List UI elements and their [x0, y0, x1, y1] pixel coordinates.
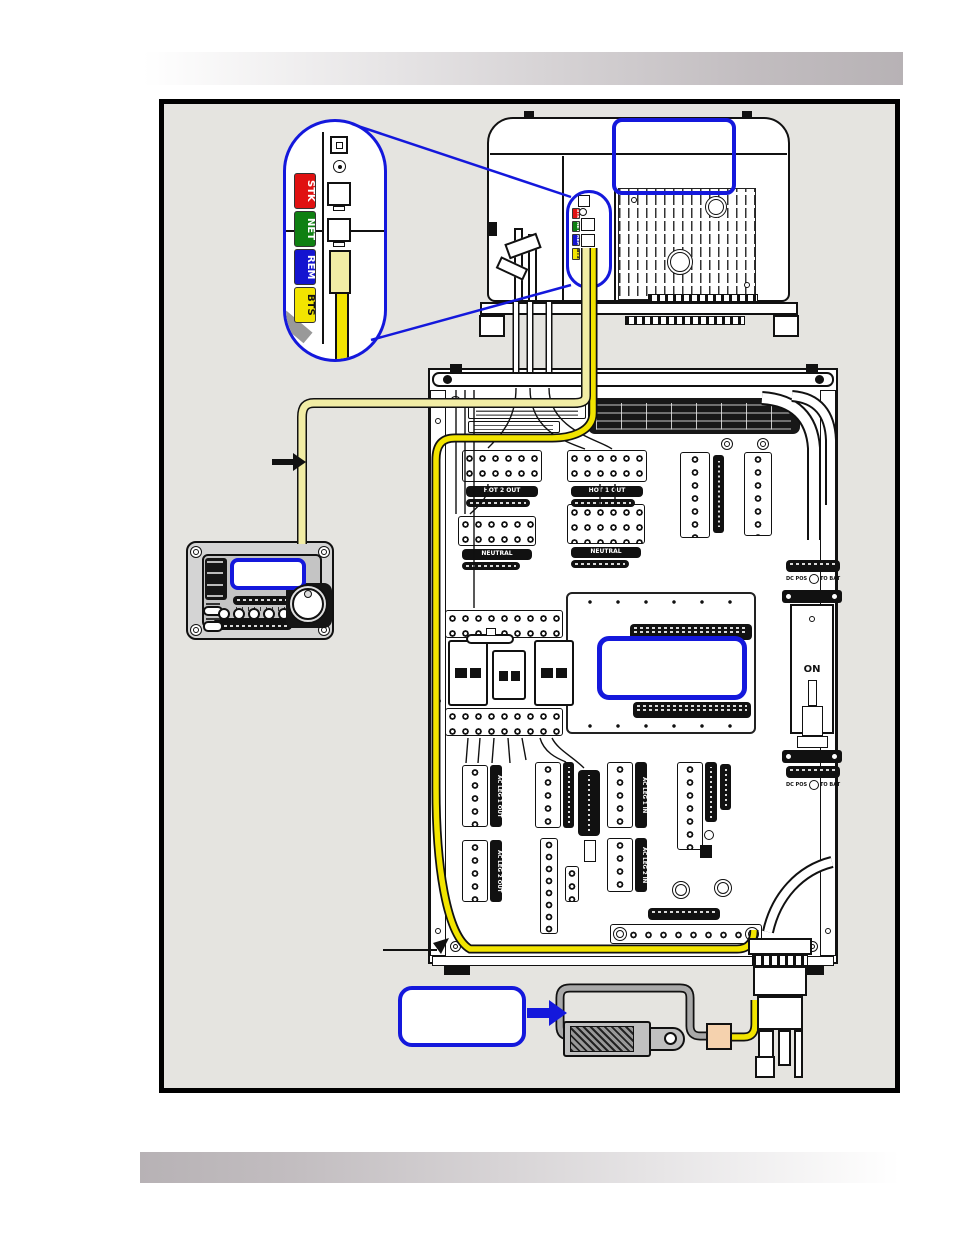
remote-button-2 [233, 608, 245, 620]
remote-brand-strip [233, 596, 293, 605]
dc-cross-screw-top [809, 574, 819, 584]
center-plate-holes-top [576, 598, 746, 606]
label-hot1-out: HOT 1 OUT [571, 486, 643, 497]
upper-screw-2 [757, 438, 769, 450]
block-ac-leg1-in [607, 762, 633, 828]
label-neutral-lower [563, 762, 574, 828]
breaker-link-tab [486, 628, 496, 636]
callout-box-bottom [398, 986, 526, 1047]
dc-column-block [700, 845, 712, 858]
conduit-collar [752, 955, 808, 966]
label-hot1-sub [571, 499, 635, 507]
callout-jack-lower-tab [333, 242, 345, 247]
dc-label-top [786, 560, 840, 572]
remote-left-label-1 [206, 603, 220, 605]
flange-screw-4 [825, 418, 831, 424]
top-bolt-right [806, 364, 818, 372]
remote-button-3 [248, 608, 260, 620]
breaker-right [534, 640, 574, 706]
callout-jack-lower [327, 218, 351, 242]
callout-cable-run [335, 294, 349, 362]
dc-toggle-lever [802, 706, 823, 736]
label-dc-column [705, 762, 717, 822]
remote-left-label-2 [206, 618, 220, 620]
label-ac-leg2-in: AC LEG 2 IN [635, 838, 647, 892]
breaker-left [448, 640, 488, 706]
conduit-body [753, 966, 807, 996]
inverter-bolt-right [742, 111, 752, 118]
load-center-left-flange [430, 390, 446, 956]
dc-breaker-hole [809, 616, 815, 622]
dc-breaker-on-label: ON [790, 664, 834, 676]
callout-panel-line [322, 132, 324, 344]
inverter-teeth-upper [648, 294, 758, 302]
inverter-bottom-rail [480, 302, 798, 315]
block-ac-leg2-in [607, 838, 633, 892]
remote-screw-tl [190, 546, 202, 558]
remote-button-1 [218, 608, 230, 620]
callout-box-middle [597, 636, 747, 700]
dc-pos-text-bottom: DC POS [786, 782, 810, 790]
small-block [565, 866, 579, 902]
terminal-block-mid-center [567, 504, 645, 544]
label-neutral-center: NEUTRAL [571, 547, 641, 558]
breaker-middle-handle [499, 671, 520, 681]
block-ac-leg2-out [462, 840, 488, 902]
block-neutral-lower [535, 762, 561, 828]
block-dc-column [677, 762, 703, 850]
label-ac-leg1-out: AC LEG 1 OUT [490, 765, 502, 827]
terminal-block-hot2 [462, 450, 542, 482]
inverter-foot-left [479, 315, 505, 337]
remote-lcd [230, 558, 306, 590]
remote-led-panel [205, 558, 227, 600]
breaker-bottom-terminals [445, 708, 563, 736]
callout-square-connector-inner [336, 142, 343, 149]
conduit-cable-1-end [755, 1056, 775, 1078]
breaker-left-handle [455, 668, 480, 678]
dc-toggle-base [797, 736, 828, 748]
flange-screw-3 [435, 928, 441, 934]
vertical-block-d [744, 452, 772, 536]
top-bolt-left [450, 364, 462, 372]
callout-cable-plug [329, 250, 351, 294]
callout-box-top [612, 118, 736, 195]
led-row-3 [207, 584, 225, 586]
inverter-foot-right [773, 315, 799, 337]
label-below-blue-box [633, 702, 751, 718]
manual-page: STK NET REM BTS STK NET REM BTS [0, 0, 954, 1235]
load-center-top-rail [432, 372, 834, 387]
callout-round-connector-dot [338, 165, 342, 169]
led-label-4 [207, 595, 223, 597]
center-plate-holes-bottom [576, 722, 746, 730]
conduit-flange [748, 938, 812, 955]
cable-connector-tan [706, 1023, 732, 1050]
spec-table [588, 398, 800, 434]
header-bar [143, 52, 903, 85]
inverter-divider-left [562, 156, 564, 302]
dc-pos-text-top: DC POS [786, 576, 810, 584]
callout-jack-upper [327, 182, 351, 206]
inverter-heatsink-vents [618, 188, 756, 300]
inverter-divider-right [614, 186, 616, 302]
dc-label-bottom [786, 766, 840, 778]
rail-bolt-left [443, 375, 452, 384]
dc-bar-screw-tl [785, 593, 792, 600]
lower-screw-1 [672, 881, 690, 899]
label-hot2-out: HOT 2 OUT [466, 486, 538, 497]
foot-left [444, 966, 470, 975]
vertical-label-c [713, 455, 724, 533]
heatsink-screw-2 [744, 282, 750, 288]
flange-screw-1 [435, 418, 441, 424]
dc-bar-screw-bl [785, 753, 792, 760]
vertical-block-c [680, 452, 710, 538]
relay-component [578, 770, 600, 836]
inverter-bolt-left [524, 111, 534, 118]
terminal-block-mid-left [458, 516, 536, 546]
port-label-net: NET [294, 211, 316, 247]
breaker-middle [492, 650, 526, 700]
dc-column-screw [704, 830, 714, 840]
terminal-block-hot1 [567, 450, 647, 482]
battery-temp-sensor-hatch [570, 1026, 634, 1052]
heatsink-knockout-top [705, 196, 727, 218]
callout-chassis-line-right [350, 230, 387, 232]
info-label-a [468, 402, 586, 419]
led-row-4 [207, 595, 225, 597]
remote-knob-dot [304, 590, 312, 598]
ground-bus-bar [610, 924, 762, 944]
led-label-1 [207, 561, 223, 563]
led-row-1 [207, 561, 225, 563]
port-label-stk: STK [294, 173, 316, 209]
port-cluster-outline [566, 190, 612, 289]
dc-bar-screw-tr [831, 593, 838, 600]
block-ac-leg1-out [462, 765, 488, 827]
label-right-column [720, 764, 731, 810]
ground-bus-label [648, 908, 720, 920]
breaker-right-handle [541, 668, 566, 678]
flange-screw-2 [435, 698, 441, 704]
heatsink-screw-1 [631, 197, 637, 203]
label-neutral-center-sub [571, 560, 629, 568]
panel-screw-bl [450, 941, 461, 952]
label-hot2-sub [466, 499, 530, 507]
led-label-2 [207, 572, 223, 574]
led-row-2 [207, 572, 225, 574]
label-ac-leg2-out: AC LEG 2 OUT [490, 840, 502, 902]
info-label-b [468, 421, 560, 433]
to-bat-text-bottom: TO BAT [820, 782, 842, 790]
remote-screw-tr [318, 546, 330, 558]
ground-bus-screw-left [613, 927, 627, 941]
conduit-cable-2 [778, 1030, 791, 1066]
flange-screw-6 [825, 928, 831, 934]
vertical-bus-bar [540, 838, 558, 934]
port-label-rem: REM [294, 249, 316, 285]
remote-button-4 [263, 608, 275, 620]
port-label-bts: BTS [294, 287, 316, 323]
panel-screw-tr [807, 396, 818, 407]
callout-jack-upper-tab [333, 206, 345, 211]
dc-toggle-stem [808, 680, 817, 706]
relay-stub [584, 840, 596, 862]
remote-left-button-2 [203, 621, 223, 632]
inverter-teeth-lower [625, 316, 745, 325]
heatsink-knockout-bottom [667, 249, 693, 275]
conduit-neck [757, 996, 803, 1030]
compartment-block [489, 222, 497, 236]
to-bat-text-top: TO BAT [820, 576, 842, 584]
label-neutral-left: NEUTRAL [462, 549, 532, 560]
footer-bar [140, 1152, 900, 1183]
port-zoom-callout: STK NET REM BTS [283, 119, 387, 362]
panel-screw-tl [450, 396, 461, 407]
upper-screw-1 [721, 438, 733, 450]
conduit-cable-3 [794, 1030, 803, 1078]
label-ac-leg1-in: AC LEG 1 IN [635, 762, 647, 828]
battery-temp-sensor-hole [664, 1032, 677, 1045]
dc-bar-screw-br [831, 753, 838, 760]
remote-screw-bl [190, 624, 202, 636]
lower-screw-2 [714, 879, 732, 897]
rail-bolt-right [815, 375, 824, 384]
led-label-3 [207, 584, 223, 586]
label-neutral-left-sub [462, 562, 520, 570]
dc-cross-screw-bottom [809, 780, 819, 790]
